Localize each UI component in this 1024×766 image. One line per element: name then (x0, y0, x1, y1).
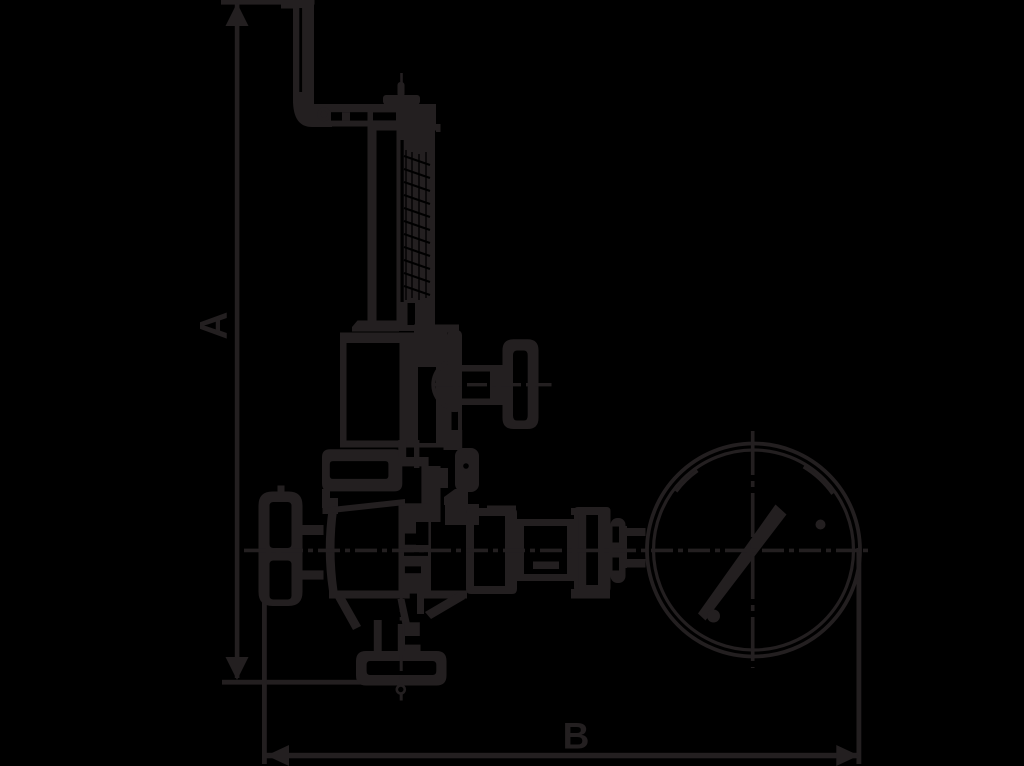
svg-text:A: A (193, 311, 236, 339)
svg-text:B: B (563, 716, 590, 757)
